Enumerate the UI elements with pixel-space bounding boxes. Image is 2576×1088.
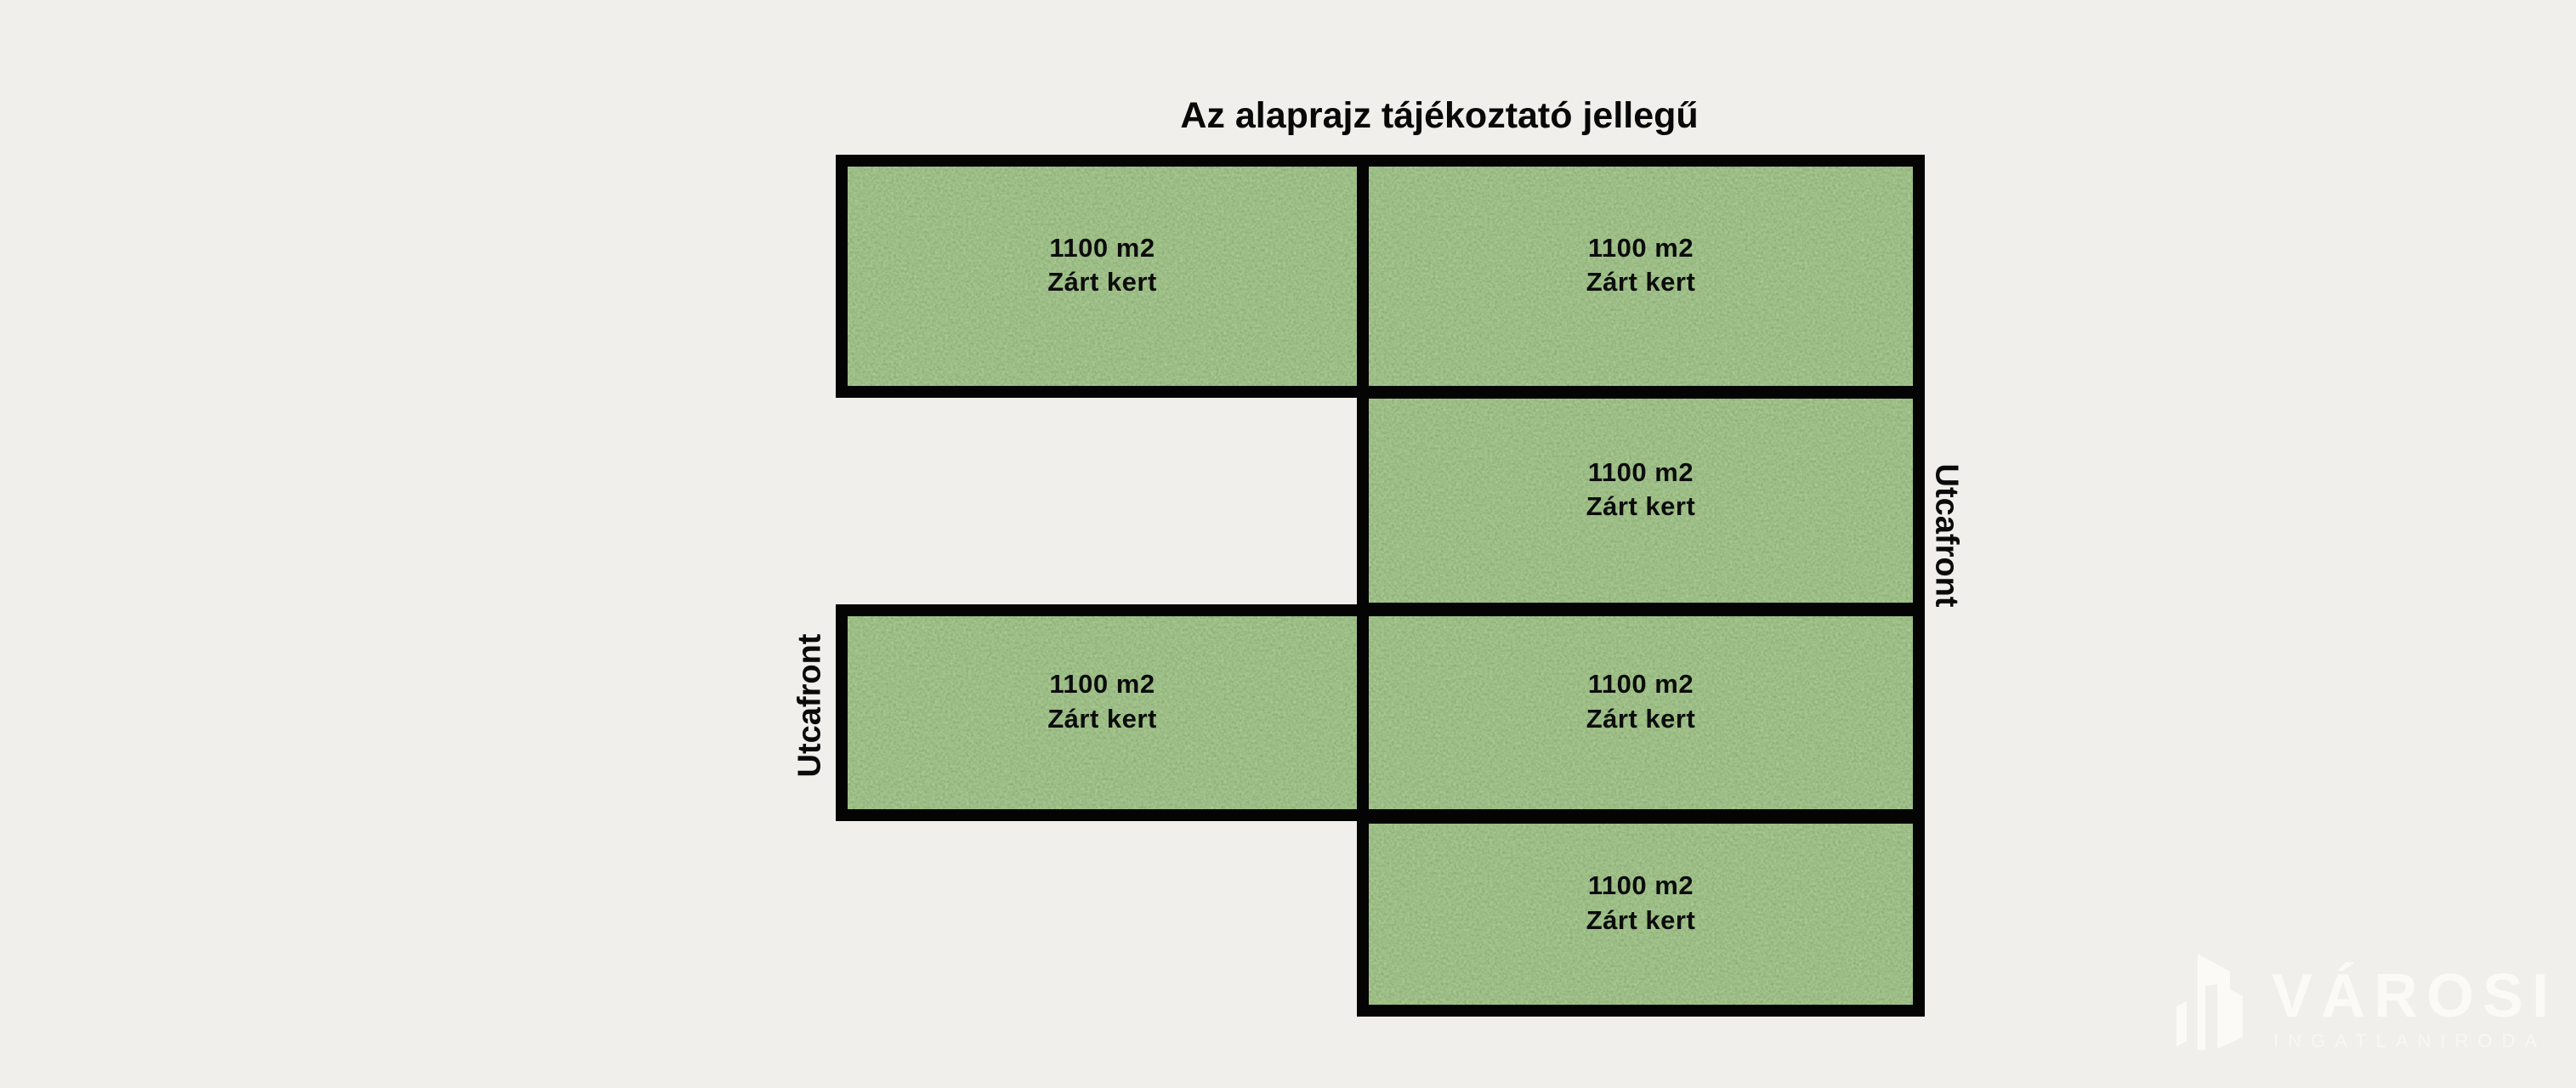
street-front-label-right: Utcafront bbox=[1928, 464, 1965, 608]
plot-label: 1100 m2 Zárt kert bbox=[1369, 156, 1913, 375]
plot-tile-3: 1100 m2 Zárt kert bbox=[1357, 387, 1925, 615]
plot-type-label: Zárt kert bbox=[1586, 702, 1696, 736]
plot-label: 1100 m2 Zárt kert bbox=[1369, 605, 1913, 798]
site-plan: Az alaprajz tájékoztató jellegű 1100 m2 … bbox=[0, 0, 2576, 1088]
plot-area-label: 1100 m2 bbox=[1588, 456, 1694, 490]
plot-tile-4: 1100 m2 Zárt kert bbox=[836, 604, 1369, 821]
page-title: Az alaprajz tájékoztató jellegű bbox=[1180, 95, 1698, 137]
plot-type-label: Zárt kert bbox=[1586, 265, 1696, 299]
brand-subtitle: INGATLANIRODA bbox=[2273, 1032, 2546, 1051]
brand-name: VÁROSI bbox=[2272, 966, 2557, 1027]
plot-type-label: Zárt kert bbox=[1047, 265, 1157, 299]
plot-tile-1: 1100 m2 Zárt kert bbox=[836, 155, 1369, 398]
plot-label: 1100 m2 Zárt kert bbox=[848, 156, 1357, 375]
plot-label: 1100 m2 Zárt kert bbox=[1369, 388, 1913, 592]
plot-area-label: 1100 m2 bbox=[1588, 667, 1694, 701]
brand-watermark: VÁROSI INGATLANIRODA bbox=[2168, 943, 2559, 1071]
plot-label: 1100 m2 Zárt kert bbox=[848, 605, 1357, 798]
plot-tile-2: 1100 m2 Zárt kert bbox=[1357, 155, 1925, 398]
plot-area-label: 1100 m2 bbox=[1588, 231, 1694, 265]
plot-area-label: 1100 m2 bbox=[1588, 869, 1694, 903]
plot-area-label: 1100 m2 bbox=[1049, 667, 1155, 701]
plot-type-label: Zárt kert bbox=[1586, 904, 1696, 938]
plot-label: 1100 m2 Zárt kert bbox=[1369, 813, 1913, 994]
building-icon bbox=[2168, 943, 2249, 1054]
plot-tile-6: 1100 m2 Zárt kert bbox=[1357, 812, 1925, 1017]
plot-tile-5: 1100 m2 Zárt kert bbox=[1357, 604, 1925, 821]
plot-type-label: Zárt kert bbox=[1047, 702, 1157, 736]
plot-type-label: Zárt kert bbox=[1586, 490, 1696, 524]
plot-area-label: 1100 m2 bbox=[1049, 231, 1155, 265]
street-front-label-left: Utcafront bbox=[792, 634, 829, 778]
